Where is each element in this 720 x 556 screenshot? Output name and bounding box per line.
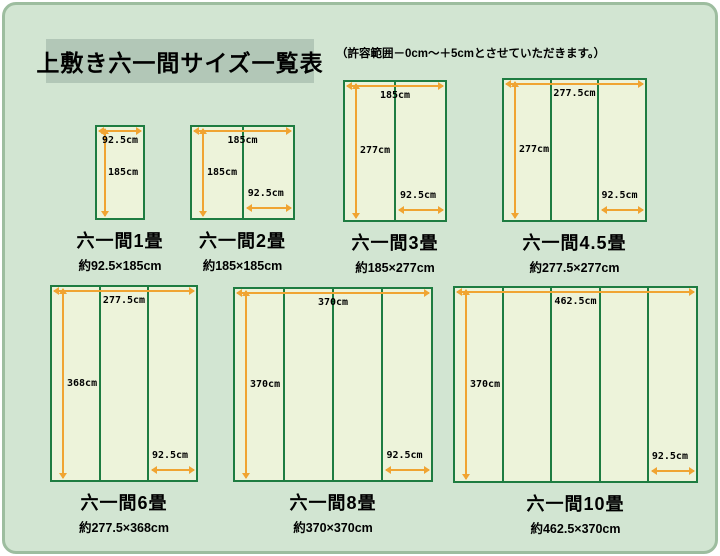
mat-diagram-3jo: 185cm 277cm 92.5cm [343, 80, 447, 222]
width-arrow [54, 290, 194, 292]
diagram-cell-10jo: 462.5cm 370cm 92.5cm 六一間10畳 約462.5×370cm [453, 286, 698, 537]
diagram-title: 六一間3畳 [351, 229, 438, 255]
width-label: 277.5cm [52, 295, 196, 307]
height-label: 277cm [519, 144, 549, 156]
diagram-caption: 六一間4.5畳 約277.5×277cm [502, 229, 647, 276]
size-chart-panel: 上敷き六一間サイズ一覧表 （許容範囲－0cm～＋5cmとさせていただきます。） … [2, 2, 718, 554]
height-label: 277cm [360, 145, 390, 157]
diagram-title: 六一間10畳 [526, 490, 624, 516]
diagram-title: 六一間4.5畳 [522, 229, 626, 255]
diagram-cell-1jo: 92.5cm 185cm 六一間1畳 約92.5×185cm [95, 125, 145, 274]
mat-divider [550, 80, 552, 220]
partial-width-label: 92.5cm [393, 190, 443, 202]
width-arrow [457, 291, 694, 293]
mat-divider [332, 289, 334, 480]
partial-width-arrow [247, 207, 292, 209]
diagram-title: 六一間1畳 [77, 227, 164, 253]
height-label: 370cm [250, 379, 280, 391]
height-arrow [355, 84, 357, 218]
diagram-cell-4-5jo: 277.5cm 277cm 92.5cm 六一間4.5畳 約277.5×277c… [502, 78, 647, 276]
mat-diagram-6jo: 277.5cm 368cm 92.5cm [50, 285, 198, 482]
diagram-cell-6jo: 277.5cm 368cm 92.5cm 六一間6畳 約277.5×368cm [50, 285, 198, 536]
diagram-title: 六一間6畳 [80, 489, 167, 515]
page-title-text: 上敷き六一間サイズ一覧表 [36, 44, 323, 78]
height-arrow [245, 291, 247, 478]
height-arrow [62, 289, 64, 478]
diagram-cell-8jo: 370cm 370cm 92.5cm 六一間8畳 約370×370cm [233, 287, 433, 536]
partial-width-label: 92.5cm [646, 451, 694, 463]
width-label: 277.5cm [504, 88, 645, 100]
diagram-size: 約185×185cm [203, 255, 283, 274]
diagram-caption: 六一間2畳 約185×185cm [190, 227, 295, 274]
width-label: 185cm [345, 90, 445, 102]
partial-width-label: 92.5cm [241, 188, 292, 200]
partial-width-arrow [602, 209, 643, 211]
width-label: 370cm [235, 297, 431, 309]
diagram-title: 六一間2畳 [199, 227, 286, 253]
diagram-size: 約92.5×185cm [78, 255, 161, 274]
partial-width-arrow [399, 209, 443, 211]
diagram-size: 約277.5×277cm [529, 257, 619, 276]
width-label: 462.5cm [455, 296, 696, 308]
mat-diagram-1jo: 92.5cm 185cm [95, 125, 145, 220]
diagram-size: 約462.5×370cm [530, 518, 620, 537]
width-arrow [194, 130, 291, 132]
height-label: 368cm [67, 378, 97, 390]
diagram-size: 約185×277cm [355, 257, 435, 276]
page-title: 上敷き六一間サイズ一覧表 [46, 39, 314, 83]
width-label: 185cm [192, 135, 293, 147]
diagram-title: 六一間8畳 [289, 489, 376, 515]
height-label: 370cm [470, 379, 500, 391]
diagram-size: 約277.5×368cm [79, 517, 169, 536]
mat-diagram-8jo: 370cm 370cm 92.5cm [233, 287, 433, 482]
mat-diagram-4-5jo: 277.5cm 277cm 92.5cm [502, 78, 647, 222]
mat-divider [99, 287, 101, 480]
height-label: 185cm [108, 167, 138, 179]
diagram-cell-2jo: 185cm 185cm 92.5cm 六一間2畳 約185×185cm [190, 125, 295, 274]
mat-divider [599, 288, 601, 481]
partial-width-arrow [386, 469, 429, 471]
mat-diagram-10jo: 462.5cm 370cm 92.5cm [453, 286, 698, 483]
diagram-caption: 六一間6畳 約277.5×368cm [50, 489, 198, 536]
diagram-caption: 六一間1畳 約92.5×185cm [95, 227, 145, 274]
height-label: 185cm [207, 167, 237, 179]
partial-width-label: 92.5cm [380, 450, 429, 462]
width-arrow [237, 292, 429, 294]
width-label: 92.5cm [97, 135, 143, 147]
diagram-caption: 六一間10畳 約462.5×370cm [453, 490, 698, 537]
diagram-caption: 六一間3畳 約185×277cm [343, 229, 447, 276]
diagram-caption: 六一間8畳 約370×370cm [233, 489, 433, 536]
diagram-cell-3jo: 185cm 277cm 92.5cm 六一間3畳 約185×277cm [343, 80, 447, 276]
mat-divider [502, 288, 504, 481]
partial-width-arrow [652, 470, 694, 472]
height-arrow [465, 290, 467, 479]
partial-width-label: 92.5cm [596, 190, 643, 202]
diagram-size: 約370×370cm [293, 517, 373, 536]
mat-divider [283, 289, 285, 480]
mat-diagram-2jo: 185cm 185cm 92.5cm [190, 125, 295, 220]
width-arrow [506, 83, 643, 85]
mat-divider [550, 288, 552, 481]
partial-width-label: 92.5cm [146, 450, 194, 462]
tolerance-note: （許容範囲－0cm～＋5cmとさせていただきます。） [336, 45, 605, 61]
height-arrow [514, 82, 516, 218]
partial-width-arrow [152, 469, 194, 471]
width-arrow [347, 85, 443, 87]
